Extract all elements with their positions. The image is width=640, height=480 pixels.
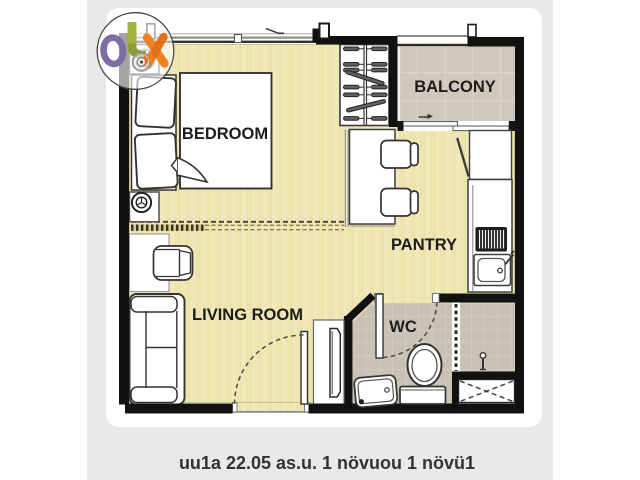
svg-text:uu1a 22.05 as.u. 1 növuou 1 nö: uu1a 22.05 as.u. 1 növuou 1 növü1	[179, 453, 475, 473]
svg-text:BALCONY: BALCONY	[414, 78, 496, 96]
svg-text:PANTRY: PANTRY	[391, 236, 457, 254]
svg-text:WC: WC	[389, 318, 417, 336]
svg-text:LIVING ROOM: LIVING ROOM	[192, 306, 303, 324]
svg-text:BEDROOM: BEDROOM	[182, 125, 268, 143]
